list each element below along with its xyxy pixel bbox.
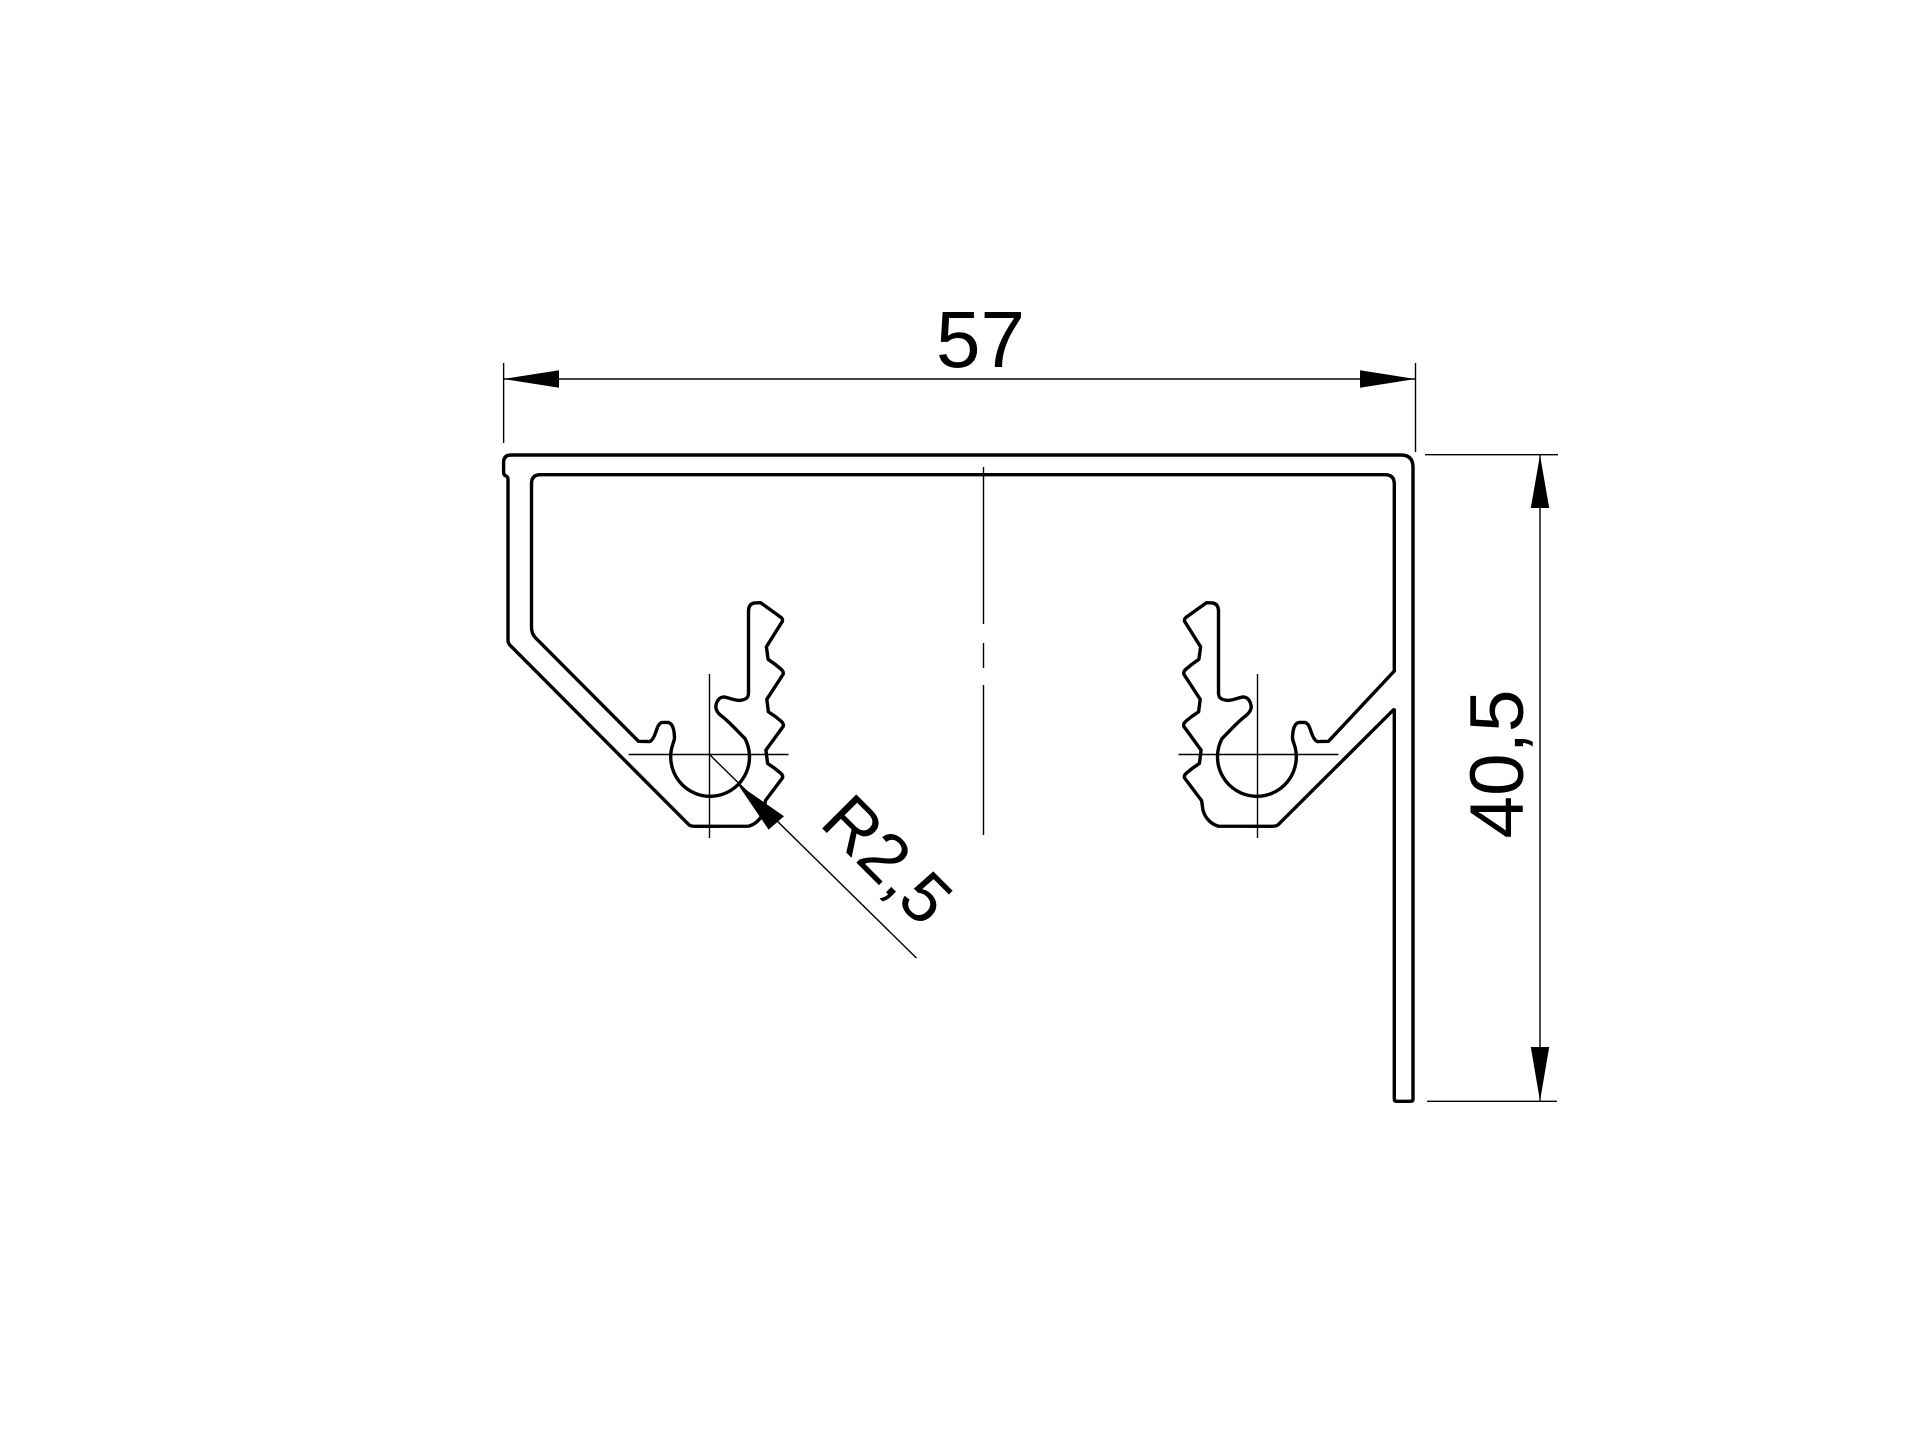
- svg-text:R2,5: R2,5: [808, 780, 968, 940]
- svg-text:57: 57: [936, 295, 1025, 384]
- svg-text:40,5: 40,5: [1455, 690, 1540, 839]
